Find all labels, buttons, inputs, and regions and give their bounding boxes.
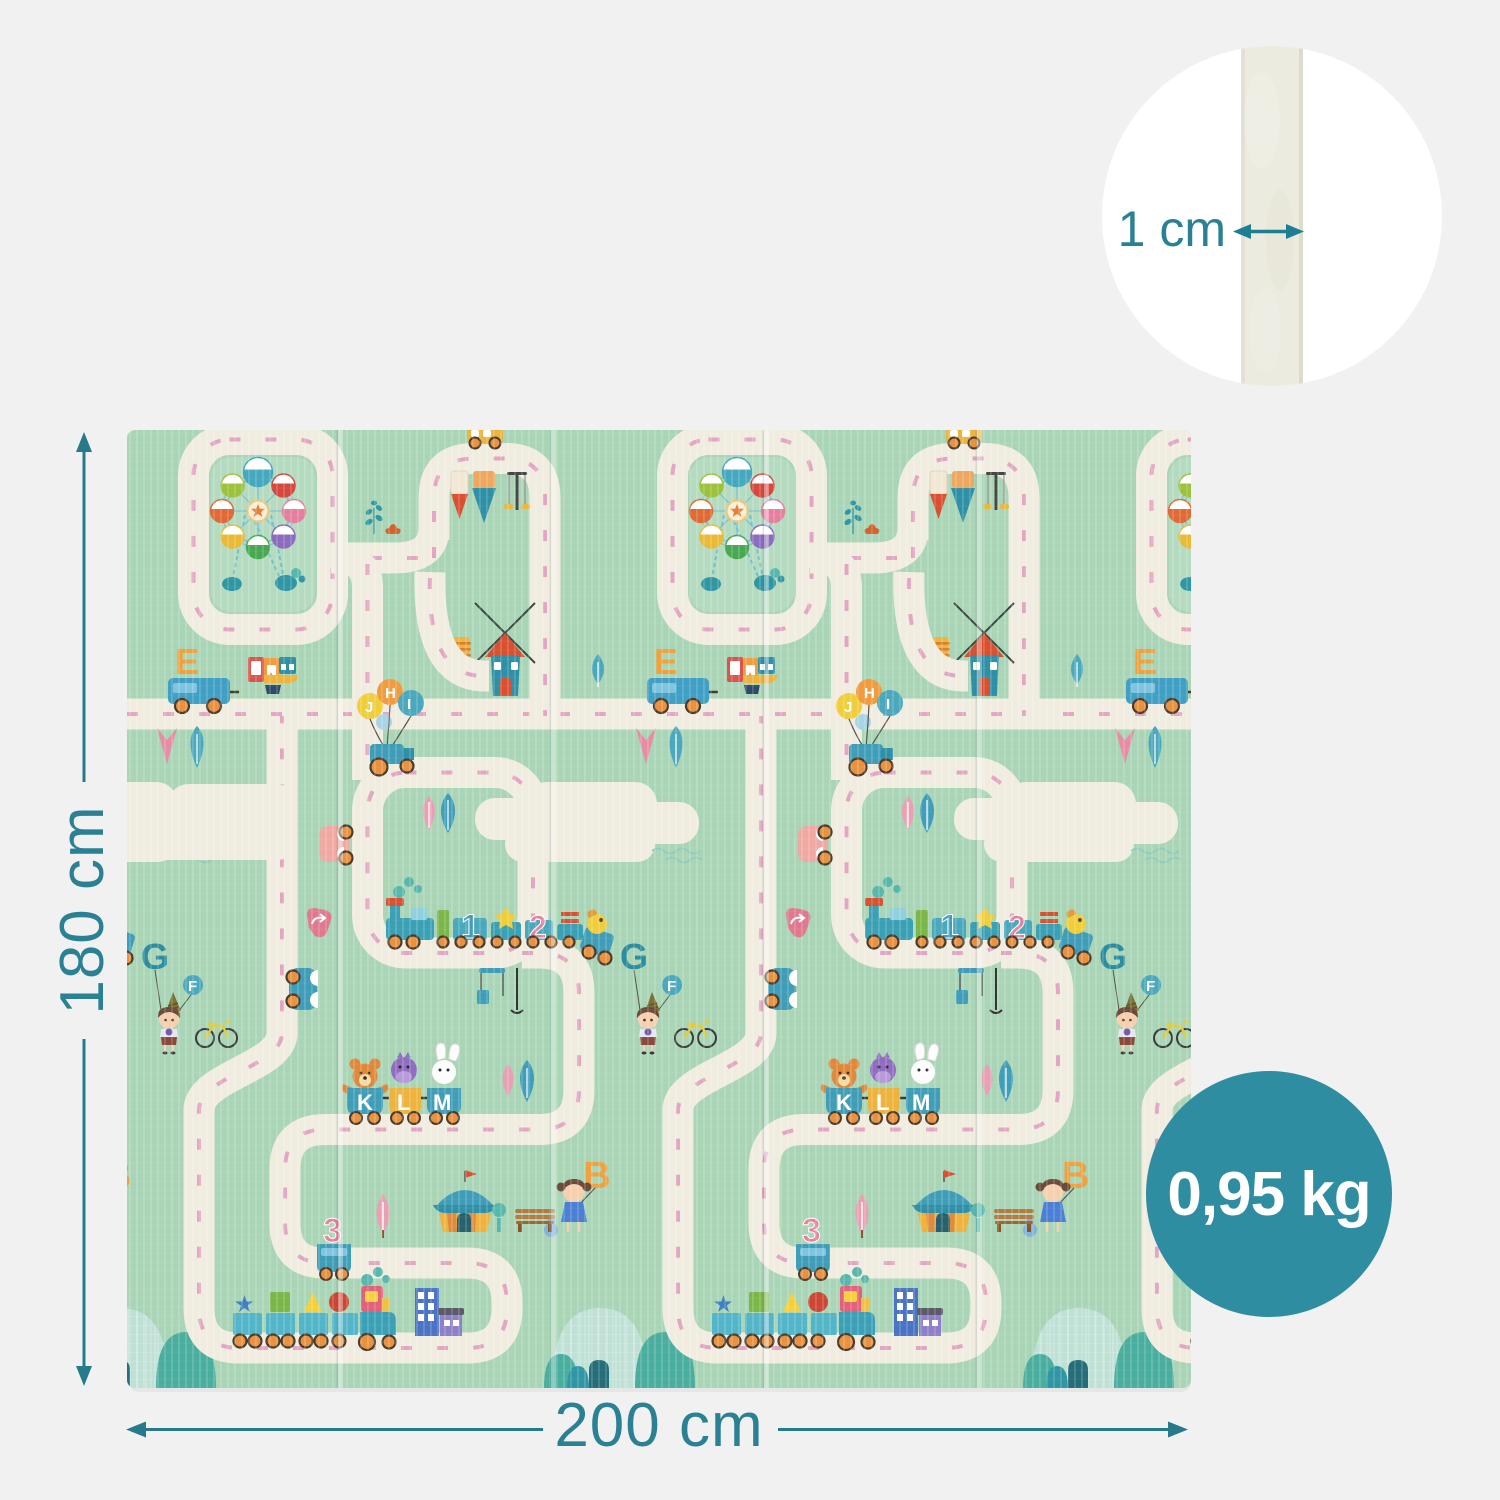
svg-text:0,95 kg: 0,95 kg (1167, 1160, 1370, 1229)
svg-text:1 cm: 1 cm (1118, 201, 1226, 257)
svg-text:180 cm: 180 cm (48, 805, 117, 1014)
svg-text:200 cm: 200 cm (554, 1391, 763, 1460)
